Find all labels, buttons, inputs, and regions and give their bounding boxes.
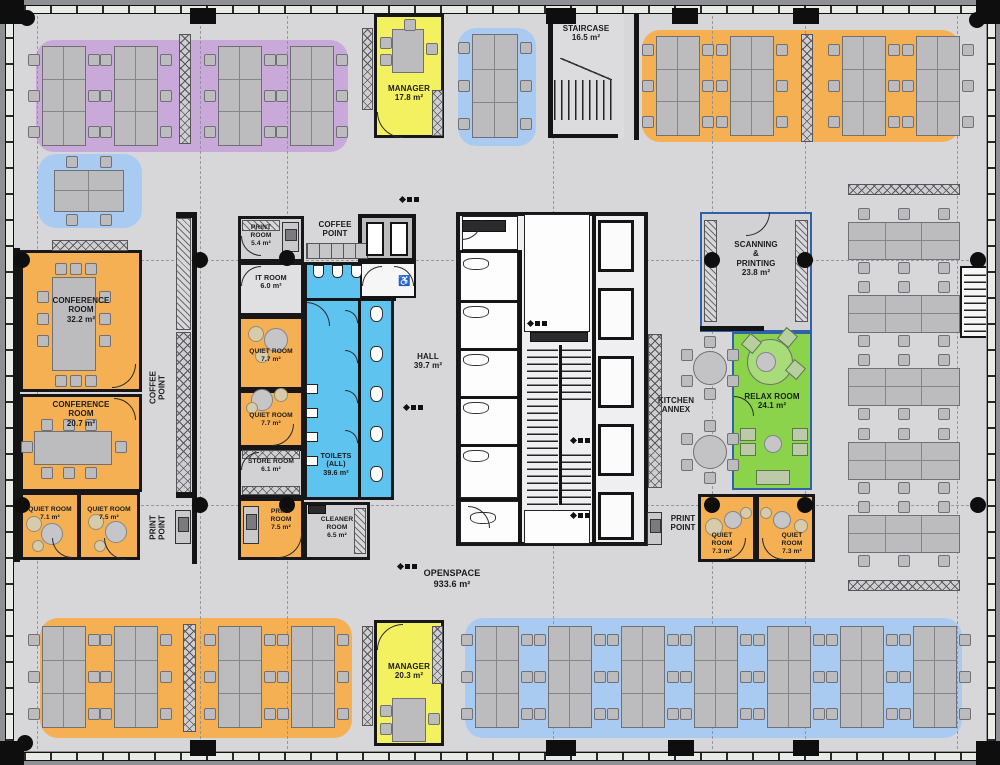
cabinet-strip [795, 220, 808, 322]
chair [100, 671, 112, 683]
chair [336, 90, 348, 102]
plan-symbol [404, 404, 426, 411]
chair [727, 375, 739, 387]
desk-cluster [913, 626, 957, 728]
chair [461, 634, 473, 646]
chair [938, 335, 950, 347]
chair [898, 262, 910, 274]
chair [702, 80, 714, 92]
printer-icon [647, 512, 662, 545]
wall-segment [518, 252, 522, 546]
chair [337, 634, 349, 646]
chair [160, 54, 172, 66]
chair [521, 671, 533, 683]
wall-segment [592, 212, 596, 546]
chair [88, 90, 100, 102]
chair [204, 54, 216, 66]
wall-pier [546, 8, 576, 24]
wall-segment [456, 498, 518, 501]
chair [277, 634, 289, 646]
cabinet-strip [176, 218, 191, 330]
chair [776, 80, 788, 92]
chair [520, 42, 532, 54]
chair [100, 90, 112, 102]
desk-cluster [290, 46, 334, 146]
chair [938, 262, 950, 274]
printer-icon [282, 222, 299, 252]
wall-segment [460, 444, 518, 447]
chair [534, 708, 546, 720]
pouf [794, 519, 808, 533]
cabinet-strip [362, 28, 373, 110]
chair [41, 467, 53, 479]
chair [858, 408, 870, 420]
chair [336, 54, 348, 66]
chair [607, 671, 619, 683]
structural-column [279, 250, 295, 266]
chair [100, 126, 112, 138]
desk-cluster [114, 46, 158, 146]
cabinet-strip [704, 220, 717, 322]
chair [264, 708, 276, 720]
chair [681, 349, 693, 361]
chair [28, 54, 40, 66]
label-quiet-77b: QUIET ROOM 7.7 m² [238, 412, 304, 428]
chair [21, 441, 33, 453]
chair [938, 354, 950, 366]
desk-cluster [848, 222, 960, 260]
cabinet-strip [183, 624, 196, 732]
chair [426, 43, 438, 55]
chair [642, 44, 654, 56]
chair [886, 634, 898, 646]
toilet-icon [463, 258, 489, 270]
desk-cluster [730, 36, 774, 136]
chair [886, 708, 898, 720]
chair [938, 501, 950, 513]
cabinet-strip [848, 184, 960, 195]
elevator-shaft [598, 424, 634, 476]
chair [100, 214, 112, 226]
structural-column [797, 252, 813, 268]
chair [66, 214, 78, 226]
cabinet-strip [176, 332, 191, 496]
desk-cluster [218, 46, 262, 146]
chair [337, 708, 349, 720]
wall-segment [176, 212, 197, 218]
chair [681, 375, 693, 387]
chair [461, 708, 473, 720]
label-store-room: STORE ROOM 6.1 m² [238, 458, 304, 474]
wall-segment [700, 326, 764, 331]
pouf [760, 507, 772, 519]
structural-column [969, 12, 985, 28]
chair [520, 118, 532, 130]
toilet-icon [463, 450, 489, 462]
chair [753, 671, 765, 683]
chair [534, 671, 546, 683]
pouf [248, 326, 264, 342]
chair [898, 428, 910, 440]
chair [858, 555, 870, 567]
table [392, 698, 426, 742]
chair [276, 54, 288, 66]
chair [204, 708, 216, 720]
chair [458, 42, 470, 54]
structural-column [17, 735, 33, 751]
label-manager-top: MANAGER 17.8 m² [374, 84, 444, 103]
chair [55, 263, 67, 275]
chair [813, 634, 825, 646]
chair [264, 671, 276, 683]
pouf [740, 507, 752, 519]
chair [458, 80, 470, 92]
chair [898, 335, 910, 347]
chair [828, 80, 840, 92]
chair [898, 482, 910, 494]
wall-segment [460, 300, 518, 303]
desk-cluster [694, 626, 738, 728]
washbasin-icon [306, 432, 318, 442]
chair [458, 118, 470, 130]
chair [716, 44, 728, 56]
chair [85, 263, 97, 275]
window-strip-top [24, 5, 976, 14]
chair [899, 634, 911, 646]
alcove-steps [964, 272, 988, 332]
exterior-wall-bottom [0, 751, 1000, 765]
label-kitchen-annex: KITCHEN ANNEX [650, 396, 702, 415]
chair [28, 126, 40, 138]
chair [962, 44, 974, 56]
pouf [773, 511, 791, 529]
desk-cluster [42, 626, 86, 728]
toilet-icon [370, 306, 383, 322]
chair [337, 671, 349, 683]
coffee-counter [306, 243, 368, 259]
chair [642, 116, 654, 128]
chair [826, 671, 838, 683]
chair [70, 263, 82, 275]
chair [88, 54, 100, 66]
label-conference-1: CONFERENCE ROOM 32.2 m² [26, 296, 136, 324]
chair [336, 126, 348, 138]
chair [727, 459, 739, 471]
exterior-wall-top [0, 0, 1000, 14]
chair [594, 708, 606, 720]
washbasin-icon [306, 384, 318, 394]
wall-segment [304, 298, 396, 301]
chair [28, 671, 40, 683]
label-it-room: IT ROOM 6.0 m² [238, 274, 304, 291]
chair [680, 634, 692, 646]
chair [607, 708, 619, 720]
chair [85, 375, 97, 387]
desk-cluster [621, 626, 665, 728]
chair [902, 80, 914, 92]
chair [100, 708, 112, 720]
chair [534, 634, 546, 646]
lounge-seat [792, 443, 808, 456]
chair [776, 116, 788, 128]
chair [858, 428, 870, 440]
chair [902, 116, 914, 128]
desk-cluster [848, 295, 960, 333]
pouf [756, 352, 776, 372]
desk-cluster [114, 626, 158, 728]
cabinet-strip [848, 580, 960, 591]
desk-cluster [848, 442, 960, 480]
wall-pier [190, 8, 216, 24]
chair [160, 671, 172, 683]
chair [704, 336, 716, 348]
chair [727, 349, 739, 361]
chair [898, 354, 910, 366]
desk-cluster [218, 626, 262, 728]
chair [100, 54, 112, 66]
urinal-icon [351, 265, 362, 278]
chair [938, 208, 950, 220]
toilet-icon [370, 346, 383, 362]
desk-cluster [42, 46, 86, 146]
chair [740, 671, 752, 683]
chair [160, 126, 172, 138]
cabinet-strip [179, 34, 191, 144]
chair [858, 354, 870, 366]
wall-segment [548, 134, 618, 138]
desk-cluster [54, 170, 124, 212]
chair [277, 671, 289, 683]
chair [740, 634, 752, 646]
structural-column [14, 252, 30, 268]
printer-icon [175, 510, 191, 544]
chair [88, 708, 100, 720]
entrance-door-leaf [390, 222, 408, 256]
toilet-icon [370, 426, 383, 442]
chair [88, 634, 100, 646]
window-strip-bottom [24, 752, 976, 761]
chair [160, 90, 172, 102]
label-toilets: TOILETS (ALL) 39.6 m² [304, 452, 368, 477]
desk-cluster [291, 626, 335, 728]
fixture-counter [308, 505, 326, 514]
desk-cluster [842, 36, 886, 136]
chair [115, 441, 127, 453]
chair [938, 555, 950, 567]
chair [716, 80, 728, 92]
table [34, 431, 112, 465]
chair [826, 708, 838, 720]
round-table [693, 351, 727, 385]
chair [37, 335, 49, 347]
chair [753, 634, 765, 646]
chair [99, 335, 111, 347]
wall-segment [634, 14, 639, 140]
chair [642, 80, 654, 92]
chair [28, 90, 40, 102]
chair [276, 126, 288, 138]
chair [204, 671, 216, 683]
chair [938, 281, 950, 293]
chair [63, 467, 75, 479]
stair-flight [562, 450, 591, 505]
label-quiet-73b: QUIET ROOM 7.3 m² [770, 532, 814, 555]
chair [959, 671, 971, 683]
label-openspace: OPENSPACE 933.6 m² [408, 568, 496, 589]
chair [667, 634, 679, 646]
chair [858, 281, 870, 293]
wall-segment [460, 396, 518, 399]
accessible-wc-icon: ♿ [398, 276, 410, 287]
chair [704, 388, 716, 400]
wall-pier [668, 740, 694, 756]
chair [704, 420, 716, 432]
round-table [693, 435, 727, 469]
wall-segment [176, 492, 197, 498]
desk-cluster [472, 34, 518, 138]
chair [85, 467, 97, 479]
plan-symbol [571, 437, 593, 444]
desk-cluster [548, 626, 592, 728]
label-print-room-top: PRINT ROOM 5.4 m² [240, 224, 282, 247]
window-strip-right [987, 24, 996, 741]
chair [264, 54, 276, 66]
chair [277, 708, 289, 720]
chair [264, 126, 276, 138]
label-print-room-mid: PRINT ROOM 7.5 m² [258, 508, 304, 531]
chair [521, 634, 533, 646]
chair [28, 634, 40, 646]
chair [938, 428, 950, 440]
chair [898, 408, 910, 420]
chair [204, 634, 216, 646]
chair [380, 705, 392, 717]
label-staircase: STAIRCASE 16.5 m² [548, 24, 624, 43]
chair [160, 708, 172, 720]
stair-flight [562, 345, 591, 400]
chair [813, 708, 825, 720]
structural-column [192, 252, 208, 268]
chair [594, 634, 606, 646]
label-quiet-71: QUIET ROOM 7.1 m² [20, 506, 80, 522]
label-quiet-73a: QUIET ROOM 7.3 m² [700, 532, 744, 555]
wall-pier [672, 8, 698, 24]
chair [204, 90, 216, 102]
pouf [274, 388, 288, 402]
toilet-icon [463, 306, 489, 318]
chair [826, 634, 838, 646]
chair [902, 44, 914, 56]
label-coffee-point-mid: COFFEE POINT [302, 220, 368, 239]
desk-cluster [840, 626, 884, 728]
chair [404, 19, 416, 31]
toilet-icon [463, 354, 489, 366]
chair [858, 501, 870, 513]
chair [28, 708, 40, 720]
label-manager-bottom: MANAGER 20.3 m² [374, 662, 444, 681]
lounge-seat [792, 428, 808, 441]
cabinet-strip [801, 34, 813, 142]
chair [899, 708, 911, 720]
chair [702, 44, 714, 56]
chair [667, 708, 679, 720]
pouf [764, 435, 782, 453]
chair [702, 116, 714, 128]
chair [66, 156, 78, 168]
label-relax-room: RELAX ROOM 24.1 m² [734, 392, 810, 411]
printer-icon [243, 506, 259, 544]
chair [461, 671, 473, 683]
plan-symbol [528, 320, 550, 327]
structural-column [704, 497, 720, 513]
washbasin-icon [306, 408, 318, 418]
chair [899, 671, 911, 683]
cabinet-strip [242, 486, 300, 495]
toilet-icon [370, 386, 383, 402]
wall-pier [793, 8, 819, 24]
chair [704, 472, 716, 484]
chair [888, 44, 900, 56]
desk-cluster [767, 626, 811, 728]
wall-segment [460, 348, 518, 351]
plan-symbol [571, 512, 593, 519]
pouf [32, 540, 44, 552]
chair [681, 459, 693, 471]
chair [727, 433, 739, 445]
lounge-seat [740, 428, 756, 441]
structural-column [192, 497, 208, 513]
elevator-shaft [598, 492, 634, 540]
wall-pier [190, 740, 216, 756]
desk-cluster [475, 626, 519, 728]
chair [716, 116, 728, 128]
chair [276, 90, 288, 102]
chair [380, 723, 392, 735]
window-strip-left [5, 24, 14, 741]
exterior-wall-right [986, 0, 1000, 765]
staircase-landing-line [560, 58, 612, 80]
structural-column [19, 10, 35, 26]
chair [680, 708, 692, 720]
chair [898, 501, 910, 513]
chair [898, 208, 910, 220]
wall-pier [976, 741, 1000, 765]
chair [70, 375, 82, 387]
chair [858, 208, 870, 220]
chair [858, 262, 870, 274]
chair [88, 671, 100, 683]
desk-cluster [848, 368, 960, 406]
chair [776, 44, 788, 56]
floor-plan: ♿ MANAGER 17.8 m² STAIRCASE 16.5 m² CONF… [0, 0, 1000, 765]
toilet-icon [463, 402, 489, 414]
chair [667, 671, 679, 683]
label-print-point-right: PRINT POINT [662, 514, 704, 533]
chair [380, 37, 392, 49]
cabinet-strip [362, 626, 373, 726]
chair [204, 126, 216, 138]
core-room [524, 214, 590, 332]
chair [55, 375, 67, 387]
chair [888, 80, 900, 92]
entrance-door-leaf [366, 222, 384, 256]
chair [680, 671, 692, 683]
chair [607, 634, 619, 646]
chair [681, 433, 693, 445]
wall-segment [460, 250, 522, 253]
wall-pier [546, 740, 576, 756]
wall-pier [793, 740, 819, 756]
